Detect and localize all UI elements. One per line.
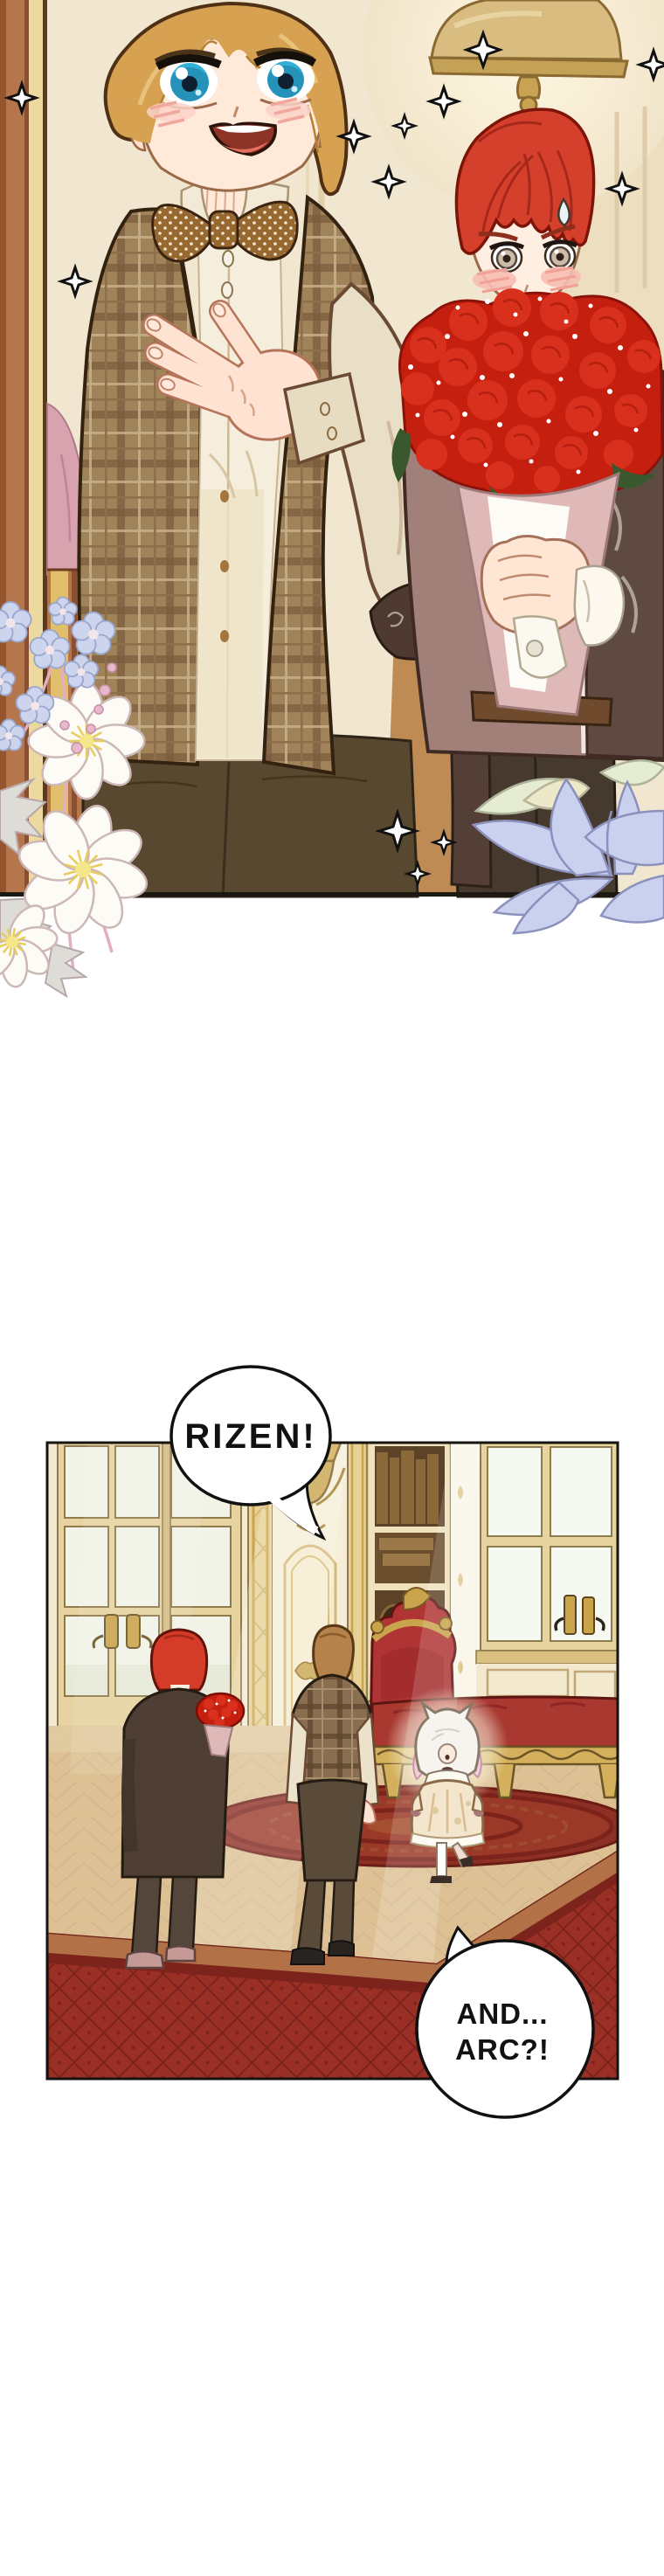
svg-text:RIZEN!: RIZEN! xyxy=(184,1417,316,1456)
svg-text:ARC?!: ARC?! xyxy=(455,2033,550,2066)
svg-text:AND...: AND... xyxy=(457,1998,549,2030)
